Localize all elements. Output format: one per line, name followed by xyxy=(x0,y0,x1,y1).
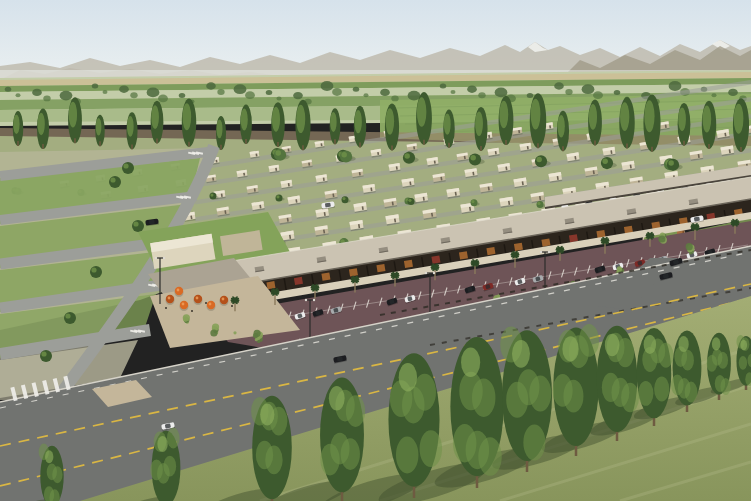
aerial-render xyxy=(0,0,751,501)
scene-stage xyxy=(0,0,751,501)
